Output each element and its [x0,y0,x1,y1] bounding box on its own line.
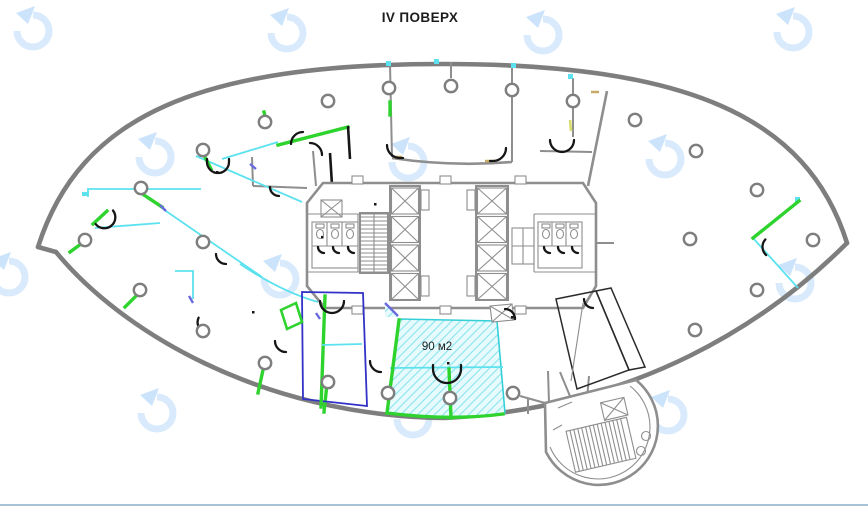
structural-column [507,387,519,399]
structural-column [259,116,271,128]
watermark-logo [0,252,25,293]
watermark-logo [270,8,303,49]
watermark-logo [263,254,296,295]
structural-column [567,95,579,107]
structural-column [506,84,518,96]
watermark-logo [648,134,681,175]
watermark-logo [526,10,559,51]
structural-column [134,284,146,296]
structural-column [197,325,209,337]
page-bottom-divider [0,504,868,506]
structural-column [629,114,641,126]
structural-column [259,357,271,369]
structural-column [322,376,334,388]
structural-column [751,284,763,296]
structural-column [135,182,147,194]
annex-stair-wing [545,380,658,485]
structural-column [689,324,701,336]
structural-column [690,145,702,157]
structural-column [751,184,763,196]
floor-plan-page: IV ПОВЕРХ 90 м2 [0,0,868,510]
structural-column [197,144,209,156]
floor-plan-svg [0,0,868,510]
dark-walls [330,126,350,185]
structural-column [445,80,457,92]
structural-column [383,82,395,94]
structural-column [444,392,456,404]
structural-column [382,387,394,399]
watermark-logo [16,6,49,47]
structural-column [197,236,209,248]
structural-column [322,95,334,107]
page-title: IV ПОВЕРХ [330,10,510,25]
watermark-logo [140,388,173,429]
watermark-logo [776,7,809,48]
watermark-logo [138,132,171,173]
structural-column [807,234,819,246]
area-label[interactable]: 90 м2 [398,341,476,353]
structural-column [79,234,91,246]
green-rect-marker [281,303,302,329]
structural-column [684,233,696,245]
